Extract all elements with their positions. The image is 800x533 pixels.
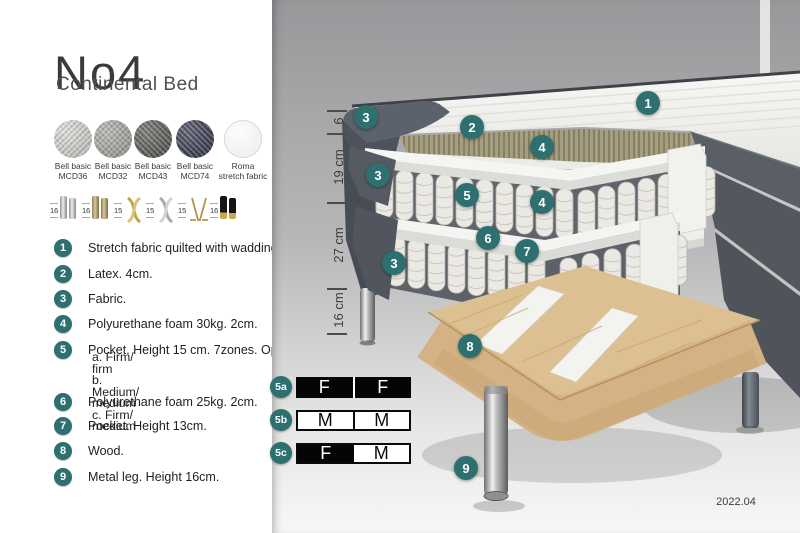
list-item: 2 Latex. 4cm. bbox=[54, 265, 153, 283]
list-item: 1 Stretch fabric quilted with wadding. bbox=[54, 239, 281, 257]
firmness-label-badge: 5c bbox=[270, 442, 292, 464]
part-number-badge: 8 bbox=[54, 442, 72, 460]
part-description: Pocket. Height 13cm. bbox=[88, 419, 207, 433]
fabric-swatch-label: Bell basicMCD74 bbox=[173, 161, 217, 181]
callout-7: 7 bbox=[515, 239, 539, 263]
leg-cylinder-chrome-pair-icon bbox=[60, 196, 76, 224]
fabric-swatch-icon bbox=[224, 120, 262, 158]
firmness-label-badge: 5b bbox=[270, 409, 292, 431]
dimension-label-legs: 16 cm bbox=[331, 280, 345, 340]
version-label: 2022.04 bbox=[700, 496, 772, 508]
fabric-swatch-mcd74: Bell basicMCD74 bbox=[173, 120, 217, 181]
fabric-swatch-icon bbox=[94, 120, 132, 158]
firmness-row-5b: 5b M M bbox=[270, 409, 411, 431]
fabric-swatch-icon bbox=[176, 120, 214, 158]
leg-hairpin-gold-icon bbox=[188, 197, 210, 223]
callout-5: 5 bbox=[455, 183, 479, 207]
dimension-label-base: 27 cm bbox=[331, 215, 345, 275]
leg-height-label: 15 bbox=[114, 201, 122, 220]
leg-option-2: 16 bbox=[82, 190, 108, 230]
part-description: Latex. 4cm. bbox=[88, 267, 153, 281]
callout-1: 1 bbox=[636, 91, 660, 115]
product-sheet: No4 Continental Bed Bell basicMCD36 Bell… bbox=[0, 0, 800, 533]
part-number-badge: 9 bbox=[54, 468, 72, 486]
part-description: Polyurethane foam 25kg. 2cm. bbox=[88, 395, 258, 409]
list-item: 9 Metal leg. Height 16cm. bbox=[54, 468, 219, 486]
leg-option-1: 16 bbox=[50, 190, 76, 230]
callout-8: 8 bbox=[458, 334, 482, 358]
firmness-bar: F F bbox=[296, 377, 411, 398]
list-item: 8 Wood. bbox=[54, 442, 124, 460]
leg-option-3: 15 bbox=[114, 190, 144, 230]
callout-2: 2 bbox=[460, 115, 484, 139]
fabric-swatch-roma: Romastretch fabric bbox=[218, 120, 268, 181]
firmness-cell: M bbox=[353, 412, 410, 429]
callout-6: 6 bbox=[476, 226, 500, 250]
leg-option-4: 15 bbox=[146, 190, 176, 230]
part-number-badge: 3 bbox=[54, 290, 72, 308]
firmness-cell: M bbox=[354, 445, 410, 462]
firmness-label-badge: 5a bbox=[270, 376, 292, 398]
leg-height-label: 16 bbox=[210, 201, 218, 220]
leg-twisted-gold-icon bbox=[124, 197, 144, 223]
fabric-swatch-mcd43: Bell basicMCD43 bbox=[131, 120, 175, 181]
part-number-badge: 1 bbox=[54, 239, 72, 257]
firmness-bar: F M bbox=[296, 443, 411, 464]
part-description: Wood. bbox=[88, 444, 124, 458]
list-item: 3 Fabric. bbox=[54, 290, 126, 308]
callout-3-top: 3 bbox=[354, 105, 378, 129]
callout-4-upper: 4 bbox=[530, 135, 554, 159]
leg-cylinder-brass-pair-icon bbox=[92, 196, 108, 224]
callout-4-lower: 4 bbox=[530, 190, 554, 214]
callout-9: 9 bbox=[454, 456, 478, 480]
part-description: Stretch fabric quilted with wadding. bbox=[88, 241, 281, 255]
dimension-tick bbox=[327, 202, 347, 204]
part-description: Metal leg. Height 16cm. bbox=[88, 470, 219, 484]
part-description: Polyurethane foam 30kg. 2cm. bbox=[88, 317, 258, 331]
part-number-badge: 5 bbox=[54, 341, 72, 359]
leg-cylinder-black-gold-pair-icon bbox=[220, 196, 236, 224]
firmness-cell: F bbox=[296, 377, 353, 398]
firmness-bar: M M bbox=[296, 410, 411, 431]
fabric-swatch-icon bbox=[54, 120, 92, 158]
list-item: 7 Pocket. Height 13cm. bbox=[54, 417, 207, 435]
dimension-label-mattress: 19 cm bbox=[331, 137, 345, 197]
part-number-badge: 4 bbox=[54, 315, 72, 333]
part-number-badge: 7 bbox=[54, 417, 72, 435]
firmness-cell: F bbox=[298, 445, 354, 462]
fabric-swatch-label: Bell basicMCD36 bbox=[51, 161, 95, 181]
firmness-row-5a: 5a F F bbox=[270, 376, 411, 398]
product-subtitle: Continental Bed bbox=[56, 74, 199, 96]
leg-height-label: 16 bbox=[82, 201, 90, 220]
firmness-row-5c: 5c F M bbox=[270, 442, 411, 464]
fabric-swatch-mcd32: Bell basicMCD32 bbox=[91, 120, 135, 181]
callout-3-middle: 3 bbox=[366, 163, 390, 187]
fabric-swatch-mcd36: Bell basicMCD36 bbox=[51, 120, 95, 181]
info-panel: No4 Continental Bed Bell basicMCD36 Bell… bbox=[0, 0, 272, 533]
list-item: 4 Polyurethane foam 30kg. 2cm. bbox=[54, 315, 258, 333]
pocket-option: a. Firm/ firm bbox=[92, 352, 139, 375]
firmness-cell: M bbox=[298, 412, 353, 429]
list-item: 6 Polyurethane foam 25kg. 2cm. bbox=[54, 393, 258, 411]
fabric-swatch-label: Romastretch fabric bbox=[218, 161, 268, 181]
leg-twisted-silver-icon bbox=[156, 197, 176, 223]
leg-option-6: 16 bbox=[210, 190, 236, 230]
part-number-badge: 2 bbox=[54, 265, 72, 283]
fabric-swatch-label: Bell basicMCD43 bbox=[131, 161, 175, 181]
fabric-swatch-label: Bell basicMCD32 bbox=[91, 161, 135, 181]
leg-option-5: 15 bbox=[178, 190, 210, 230]
part-number-badge: 6 bbox=[54, 393, 72, 411]
leg-height-label: 15 bbox=[178, 201, 186, 220]
callout-3-bottom: 3 bbox=[382, 251, 406, 275]
leg-height-label: 15 bbox=[146, 201, 154, 220]
fabric-swatch-icon bbox=[134, 120, 172, 158]
firmness-cell: F bbox=[353, 377, 412, 398]
part-description: Fabric. bbox=[88, 292, 126, 306]
leg-height-label: 16 bbox=[50, 201, 58, 220]
